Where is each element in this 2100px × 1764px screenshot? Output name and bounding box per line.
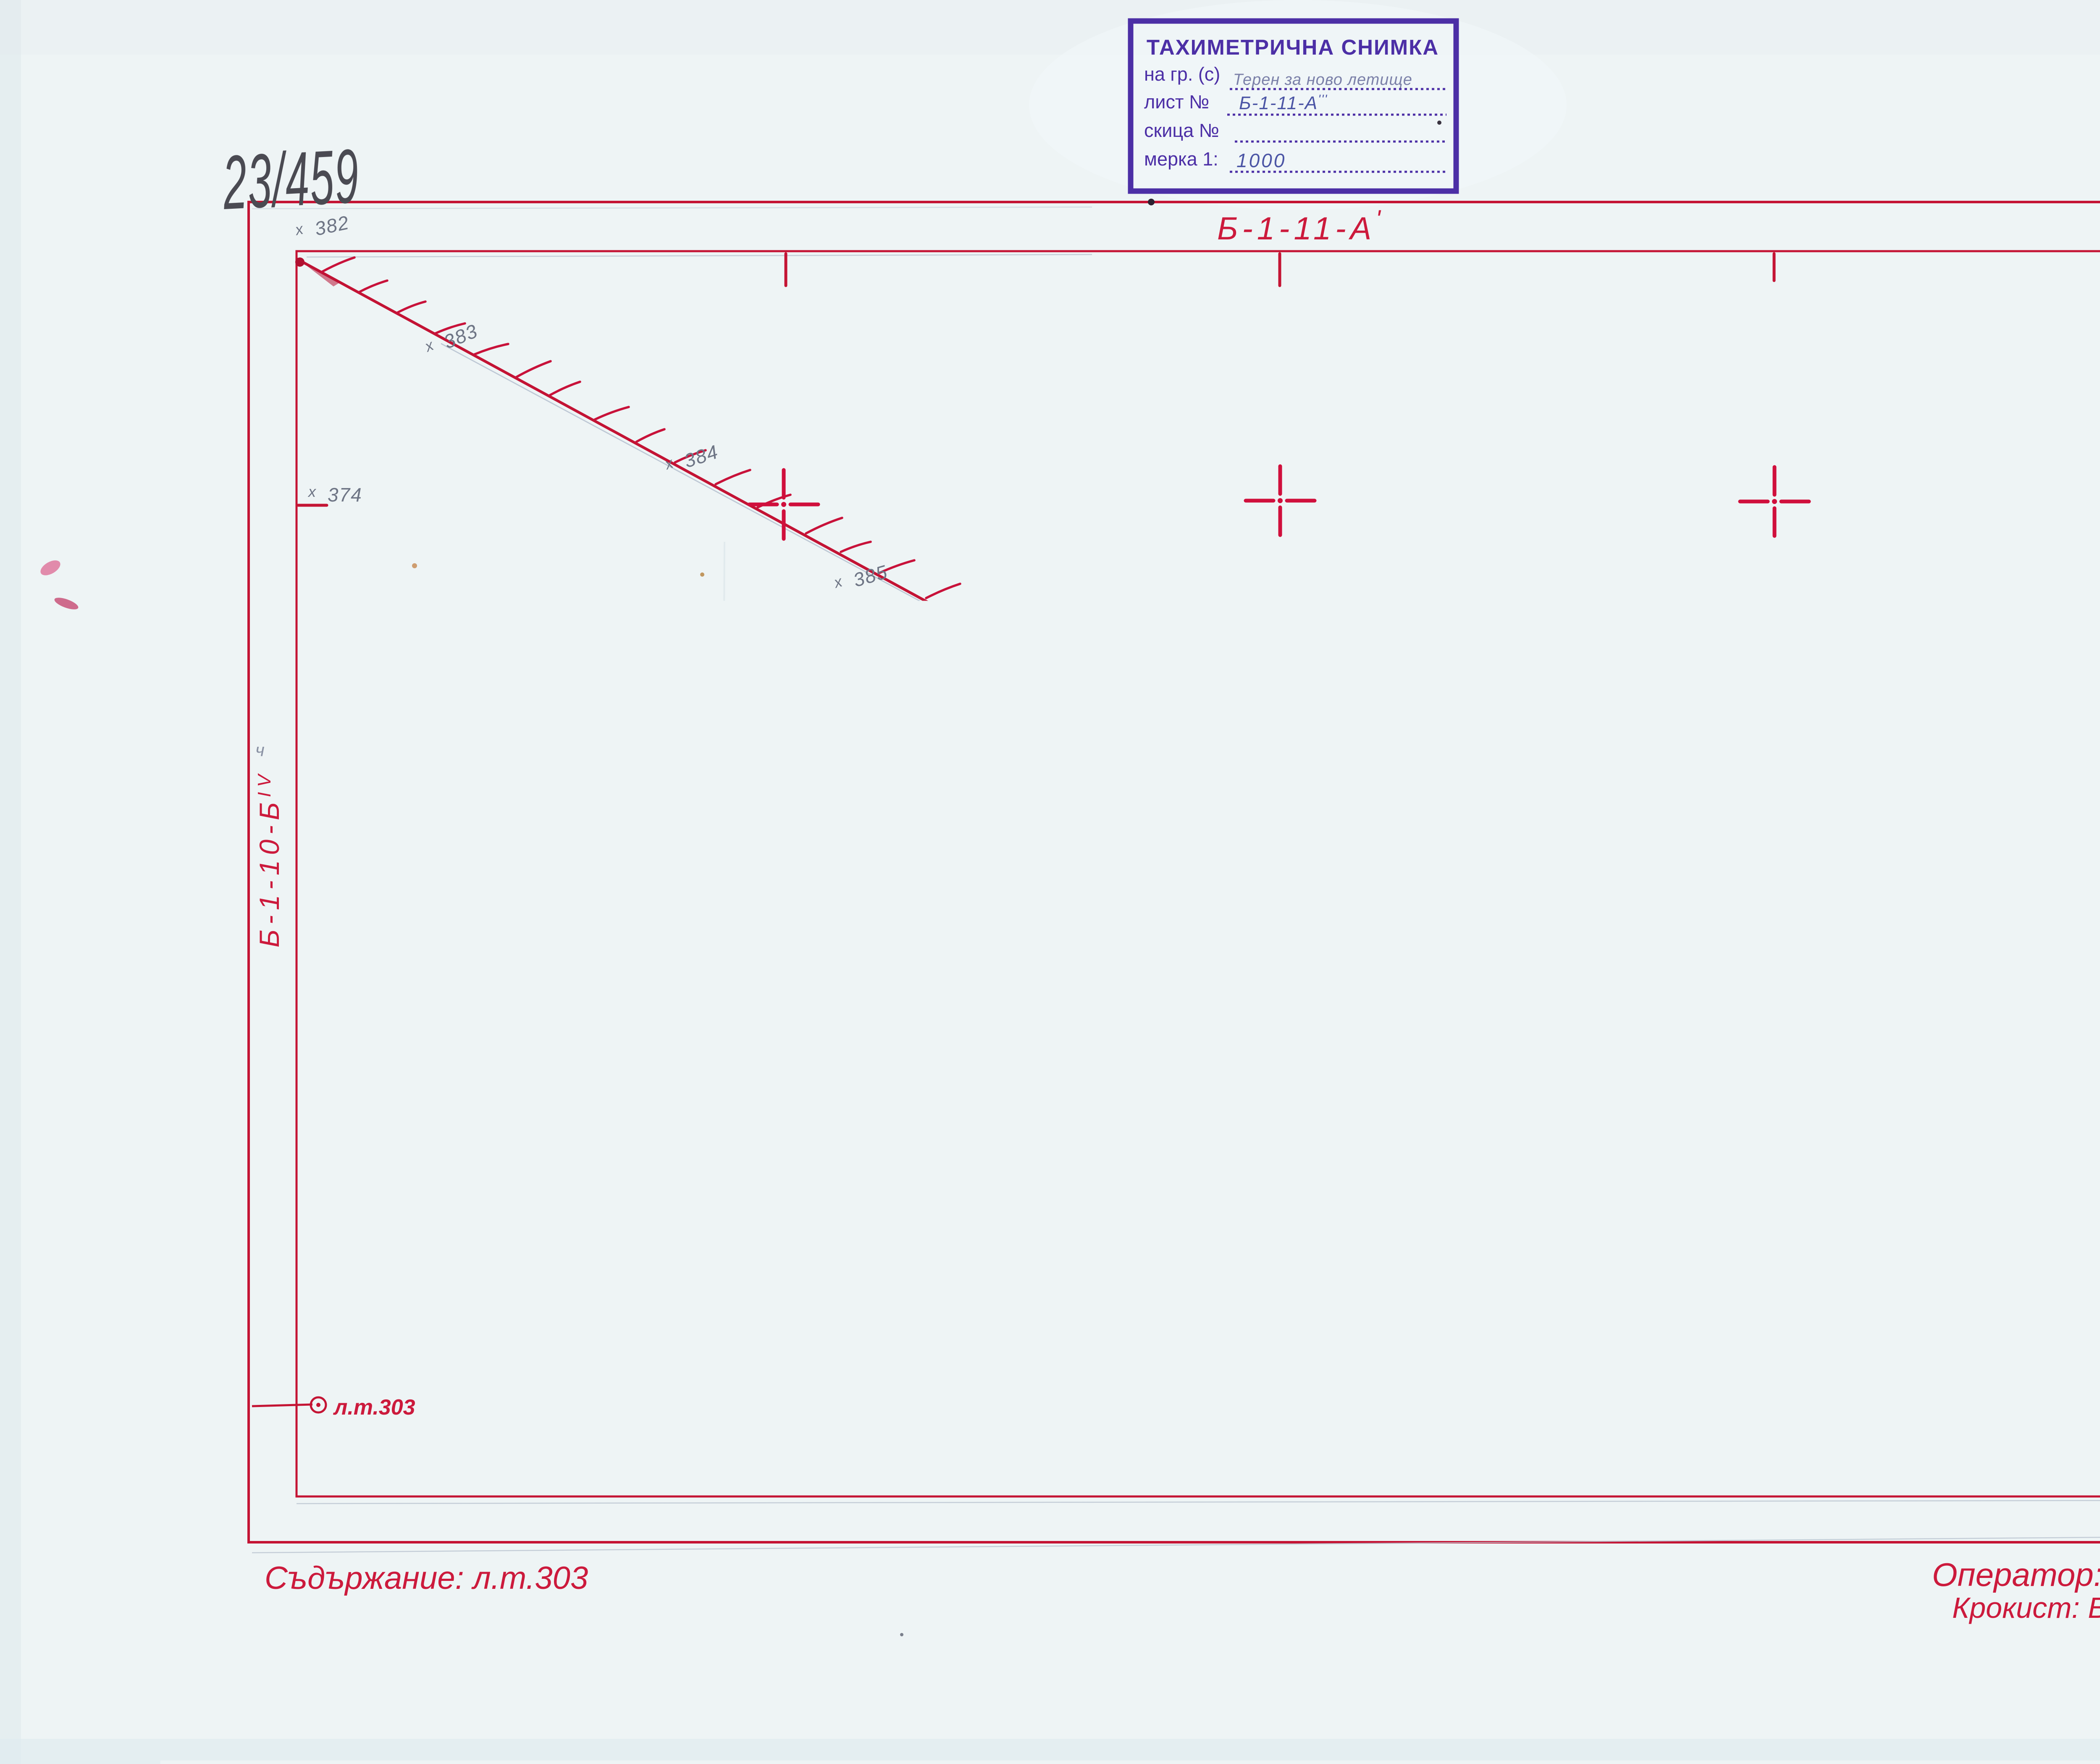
svg-text:ТАХИМЕТРИЧНА СНИМКА: ТАХИМЕТРИЧНА СНИМКА <box>1147 35 1439 59</box>
svg-text:Крокист: В.Нинов: Крокист: В.Нинов <box>1952 1591 2100 1624</box>
svg-text:на гр. (с): на гр. (с) <box>1144 63 1220 85</box>
svg-text:Б-1-11-А': Б-1-11-А' <box>1217 205 1385 247</box>
svg-text:342: 342 <box>845 1334 881 1359</box>
svg-text:394: 394 <box>1996 1518 2031 1540</box>
svg-text:373: 373 <box>498 599 533 621</box>
svg-text:1000: 1000 <box>1236 150 1286 171</box>
svg-text:скица №: скица № <box>1144 120 1219 141</box>
svg-text:Оператор: Л.Божанова: Оператор: Л.Божанова <box>1932 1556 2100 1593</box>
svg-text:358: 358 <box>504 755 539 777</box>
svg-text:Терен за ново летище: Терен за ново летище <box>1233 71 1412 89</box>
svg-text:364: 364 <box>1322 1412 1357 1434</box>
svg-text:7: 7 <box>325 963 336 985</box>
svg-text:ш: ш <box>470 770 484 790</box>
svg-text:3 6 0: 3 6 0 <box>706 924 753 945</box>
svg-text:366: 366 <box>1700 1383 1736 1408</box>
svg-text:388: 388 <box>1325 882 1360 903</box>
svg-text:ч: ч <box>255 740 265 760</box>
svg-text:x: x <box>1966 1518 1975 1536</box>
svg-text:Б-1-11-А''': Б-1-11-А''' <box>1239 92 1328 113</box>
svg-text:л.т.303: л.т.303 <box>333 1395 415 1420</box>
svg-text:x: x <box>1317 1380 1326 1397</box>
svg-text:Съдържание: л.т.303: Съдържание: л.т.303 <box>265 1560 588 1596</box>
svg-text:x: x <box>478 598 487 616</box>
svg-text:374: 374 <box>328 484 362 506</box>
svg-text:мерка 1:: мерка 1: <box>1144 148 1218 170</box>
svg-text:23/459: 23/459 <box>220 133 362 226</box>
svg-text:x: x <box>1305 881 1314 898</box>
svg-text:x: x <box>686 923 696 940</box>
svg-text:x: x <box>307 483 317 500</box>
svg-text:лист №: лист № <box>1144 91 1209 113</box>
svg-text:НИВА: НИВА <box>960 1038 1050 1068</box>
svg-text:Б-1-11-В': Б-1-11-В' <box>1148 1497 1319 1540</box>
